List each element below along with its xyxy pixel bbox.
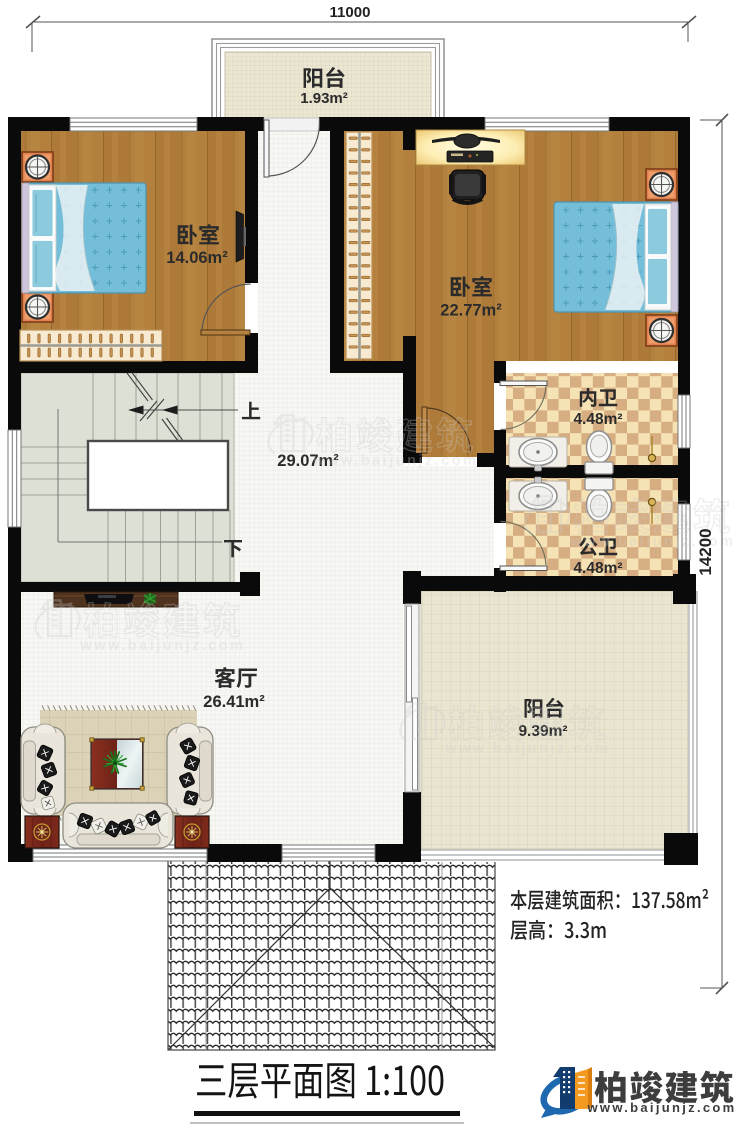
svg-text:22.77m²: 22.77m²	[440, 302, 502, 320]
svg-text:www.baijunjz.com: www.baijunjz.com	[79, 638, 245, 654]
svg-text:www.baijunjz.com: www.baijunjz.com	[312, 453, 478, 469]
svg-text:26.41m²: 26.41m²	[203, 693, 265, 711]
svg-text:4.48m²: 4.48m²	[573, 411, 622, 428]
svg-text:www.baijunjz.com: www.baijunjz.com	[587, 1100, 737, 1115]
svg-text:www.baijunjz.com: www.baijunjz.com	[444, 741, 610, 757]
svg-text:14200: 14200	[696, 528, 715, 575]
svg-text:11000: 11000	[330, 4, 371, 21]
svg-text:1.93m²: 1.93m²	[300, 90, 348, 107]
svg-text:4.48m²: 4.48m²	[573, 560, 622, 577]
svg-text:14.06m²: 14.06m²	[166, 249, 228, 267]
